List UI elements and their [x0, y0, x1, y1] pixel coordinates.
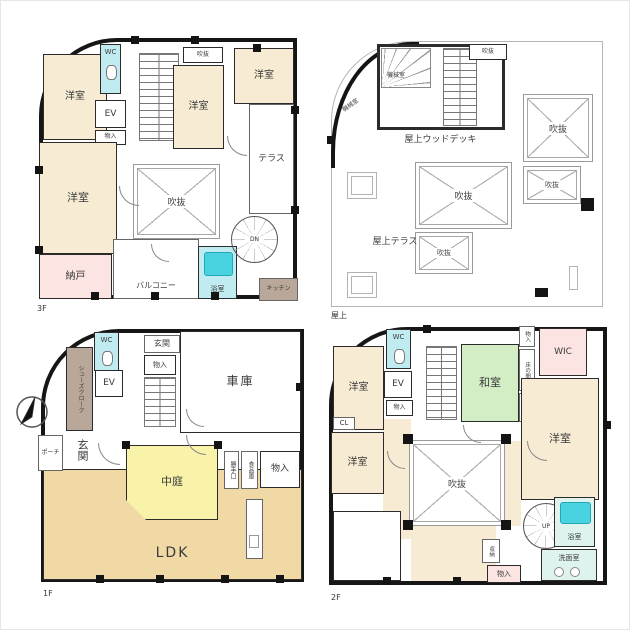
column-marker — [535, 288, 548, 297]
room-label: 洗面室 — [559, 554, 580, 562]
room-label: 玄関 — [154, 339, 170, 348]
room-1f-porch: ポーチ — [38, 435, 63, 471]
room-2f-bathroom: 浴室 — [554, 497, 595, 547]
room-1f-wc: WC — [94, 332, 119, 371]
column-marker — [327, 136, 335, 144]
column-marker — [35, 246, 43, 254]
column-marker — [603, 421, 611, 429]
room-1f-entrance-label: 玄関 — [74, 439, 90, 461]
room-1f-shoe-closet: シューズクローク — [66, 347, 93, 431]
room-label: 物入 — [393, 405, 405, 412]
kitchen-sink — [249, 535, 259, 548]
column-marker — [501, 434, 511, 444]
room-2f-western-b: 洋室 — [331, 432, 384, 494]
room-label: 物入 — [497, 570, 511, 578]
room-label: 洋室 — [254, 70, 274, 82]
room-label: CL — [340, 419, 349, 427]
room-3f-storage-room: 納戸 — [39, 254, 112, 299]
column-marker — [403, 520, 413, 530]
column-marker — [383, 577, 391, 585]
room-label: 物入 — [271, 464, 289, 474]
room-3f-western-c: 洋室 — [234, 48, 294, 104]
room-1f-storage: 物入 — [144, 355, 176, 375]
room-label: バルコニー — [136, 281, 176, 290]
room-2f-washroom: 洗面室 — [541, 549, 597, 581]
room-label: 和室 — [479, 377, 501, 390]
column-marker — [423, 325, 431, 333]
bathtub-icon — [204, 252, 233, 276]
column-marker — [453, 577, 461, 585]
room-label: LDK — [156, 545, 190, 561]
room-label: 洋室 — [349, 382, 369, 394]
room-label: 吹抜 — [435, 248, 453, 258]
column-marker — [211, 292, 219, 300]
room-label: 物入 — [524, 331, 530, 342]
column-marker — [91, 292, 99, 300]
room-2f-closet: CL — [333, 417, 355, 430]
column-marker — [191, 36, 199, 44]
bathtub-icon — [560, 502, 591, 524]
toilet-icon — [394, 349, 405, 364]
room-label: 洋室 — [549, 433, 571, 446]
room-label: WC — [101, 336, 113, 344]
room-label: キッチン — [266, 286, 290, 293]
room-label: 収納 — [488, 546, 494, 557]
room-2f-elevator: EV — [384, 371, 412, 398]
room-1f-courtyard: 中庭 — [126, 445, 218, 520]
room-label: テラス — [258, 154, 285, 164]
column-marker — [151, 292, 159, 300]
hall-2f — [505, 441, 521, 526]
room-label: 洋室 — [67, 192, 89, 205]
room-label: 食品庫 — [246, 461, 253, 479]
room-2f-wic: WIC — [539, 328, 587, 376]
floor-label-3f: 3F — [37, 304, 47, 313]
column-marker — [276, 575, 284, 583]
room-label: 物入 — [104, 134, 116, 141]
column-marker — [501, 520, 511, 530]
roof-planter — [347, 172, 377, 199]
room-1f-entry-hall: 玄関 — [144, 335, 180, 353]
room-label: EV — [392, 379, 404, 389]
column-marker — [253, 44, 261, 52]
room-3f-elevator: EV — [95, 100, 126, 128]
room-label: シューズクローク — [76, 365, 83, 413]
column-marker — [403, 434, 413, 444]
room-label: 洋室 — [65, 91, 85, 103]
floor-label-2f: 2F — [331, 593, 341, 602]
roof-planter — [347, 272, 377, 298]
room-3f-void-small: 吹抜 — [183, 47, 223, 63]
room-2f-storage-b: 物入 — [487, 565, 521, 583]
spiral-stairs-3f: DN — [231, 216, 278, 263]
room-2f-wc: WC — [386, 329, 411, 369]
roof-void-top: 吹抜 — [469, 44, 507, 60]
toilet-icon — [106, 65, 117, 80]
sink-icon — [554, 567, 564, 577]
column-marker — [122, 441, 130, 449]
roof-wood-deck-label: 屋上ウッドデッキ — [373, 132, 508, 145]
column-marker — [214, 441, 222, 449]
room-label: 床の間 — [524, 362, 530, 379]
room-label: WC — [393, 333, 405, 341]
room-2f-western-c: 洋室 — [521, 378, 599, 500]
room-3f-void: 吹抜 — [133, 164, 220, 239]
column-marker — [96, 575, 104, 583]
column-marker — [291, 206, 299, 214]
room-3f-western-b: 洋室 — [173, 65, 224, 149]
room-1f-storage-b: 物入 — [260, 451, 300, 488]
roof-terrace-label: 屋上テラス — [345, 234, 445, 247]
column-marker — [296, 383, 304, 391]
room-3f-wc: WC — [100, 44, 121, 94]
room-label: 浴室 — [211, 285, 225, 293]
stairs-direction-label: UP — [541, 523, 551, 530]
toilet-icon — [102, 351, 113, 366]
roof-void-r2: 吹抜 — [523, 166, 581, 204]
floor-plan-sheet: 洋室 WC EV 物入 吹抜 洋室 洋室 テラス 洋室 吹抜 バルコニー 浴室 … — [0, 0, 630, 630]
column-marker — [221, 575, 229, 583]
sink-icon — [570, 567, 580, 577]
room-label: 中庭 — [161, 476, 183, 489]
floor-label-roof: 屋上 — [331, 310, 347, 321]
room-2f-closet-b: 収納 — [482, 539, 500, 563]
panel-roof: 吹抜 機械室 機械室 屋上ウッドデッキ 吹抜 吹抜 吹抜 吹抜 屋上テラス 屋上 — [323, 36, 609, 321]
panel-3f: 洋室 WC EV 物入 吹抜 洋室 洋室 テラス 洋室 吹抜 バルコニー 浴室 … — [31, 36, 311, 316]
column-marker — [156, 575, 164, 583]
room-3f-western-d: 洋室 — [39, 142, 117, 254]
room-label: 物入 — [153, 361, 167, 369]
room-2f-storage: 物入 — [386, 400, 413, 416]
stairs-2f — [426, 346, 457, 420]
room-1f-pantry: 食品庫 — [241, 451, 258, 489]
room-2f-storage-top: 物入 — [519, 326, 535, 347]
kitchen-counter — [246, 499, 263, 559]
room-2f-japanese: 和室 — [461, 344, 519, 422]
room-label: ポーチ — [41, 450, 59, 457]
roof-void-c1: 吹抜 — [415, 162, 512, 229]
north-compass-icon — [13, 393, 51, 431]
stairs-direction-label: DN — [249, 236, 260, 243]
panel-2f: WC 洋室 EV 物入 和室 物入 床の間 押入 WIC CL 洋室 洋室 吹抜… — [323, 321, 611, 606]
room-label: 車庫 — [226, 375, 254, 389]
room-label: 吹抜 — [543, 180, 561, 190]
room-label: WC — [105, 48, 117, 56]
room-1f-back-door: 勝手口 — [224, 451, 239, 489]
room-1f-elevator: EV — [95, 370, 123, 397]
panel-1f: LDK 中庭 ポーチ WC シューズクローク EV 玄関 物入 車庫 玄関 勝手… — [36, 323, 316, 608]
column-marker — [131, 36, 139, 44]
room-label: 洋室 — [348, 457, 368, 469]
room-label: EV — [103, 378, 115, 388]
room-3f-bathroom: 浴室 — [198, 246, 237, 299]
winder-stairs-roof — [381, 48, 431, 88]
room-label: EV — [105, 109, 117, 119]
room-label: 浴室 — [568, 533, 582, 541]
room-label: 吹抜 — [197, 52, 209, 59]
roof-void-r1: 吹抜 — [523, 94, 593, 162]
column-marker — [35, 166, 43, 174]
floor-label-1f: 1F — [43, 589, 53, 598]
roof-machine-room-label-a: 機械室 — [387, 70, 405, 79]
room-label: 納戸 — [66, 271, 86, 283]
room-label: 吹抜 — [482, 49, 494, 56]
room-label: 洋室 — [189, 101, 209, 113]
room-label: 吹抜 — [452, 189, 474, 202]
room-label: 吹抜 — [165, 195, 187, 208]
room-label: 勝手口 — [228, 461, 235, 479]
room-label: 吹抜 — [446, 477, 468, 490]
room-3f-kitchen: キッチン — [259, 278, 298, 301]
column-marker — [291, 106, 299, 114]
stairs-1f — [144, 377, 176, 427]
column-marker — [581, 198, 594, 211]
roof-vent-slot — [569, 266, 578, 290]
room-label: WIC — [554, 347, 572, 357]
room-label: 吹抜 — [547, 122, 569, 135]
room-3f-terrace: テラス — [249, 104, 294, 214]
room-2f-void: 吹抜 — [409, 440, 505, 526]
room-2f-unlabeled — [333, 511, 401, 581]
